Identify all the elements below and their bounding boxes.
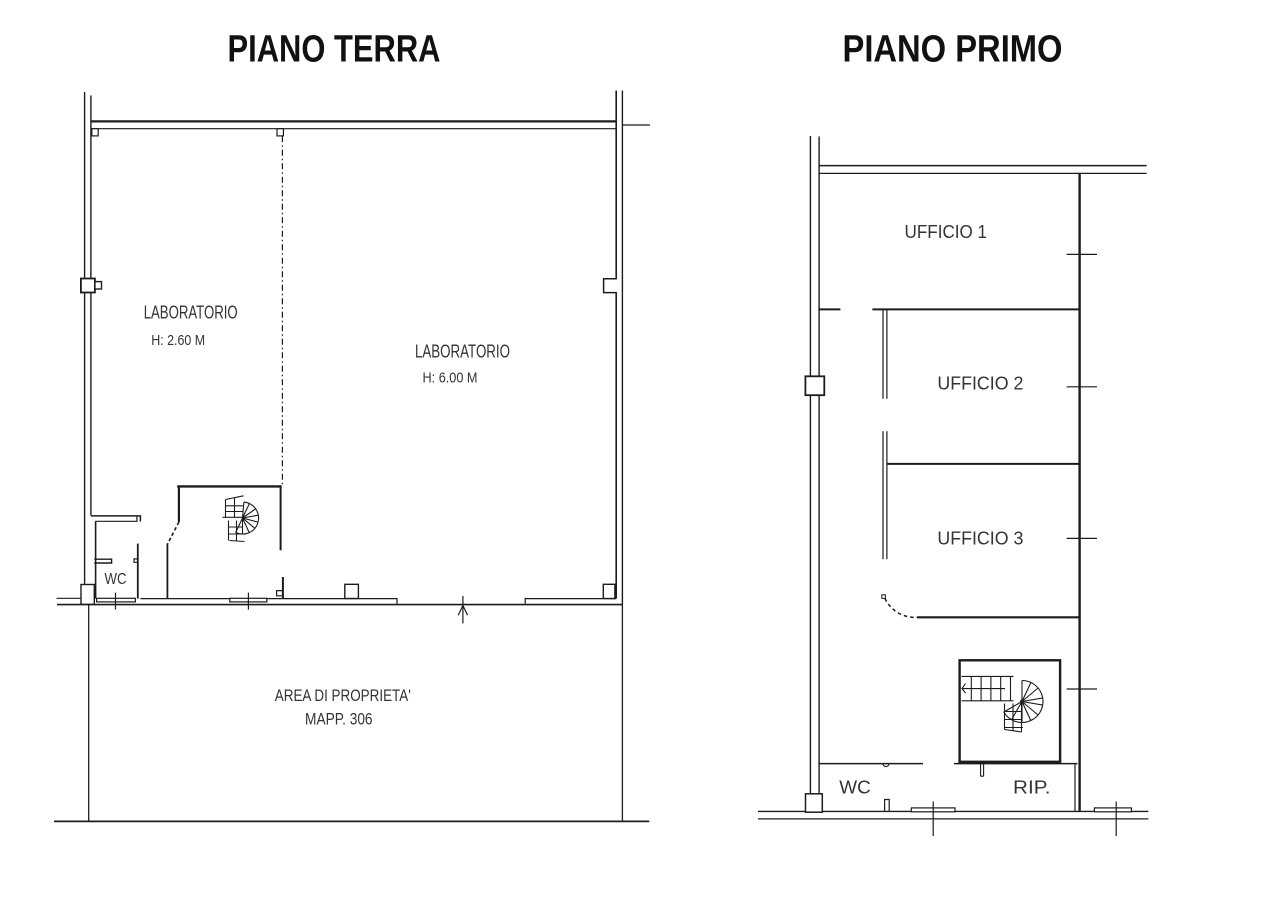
svg-text:AREA DI PROPRIETA': AREA DI PROPRIETA' (275, 686, 411, 705)
svg-text:PIANO PRIMO: PIANO PRIMO (843, 29, 1063, 71)
svg-text:H: 2.60 M: H: 2.60 M (151, 332, 205, 349)
svg-text:WC: WC (105, 571, 127, 588)
svg-text:UFFICIO 2: UFFICIO 2 (937, 374, 1023, 394)
svg-text:PIANO TERRA: PIANO TERRA (228, 29, 441, 71)
svg-text:UFFICIO 3: UFFICIO 3 (937, 529, 1023, 549)
svg-text:LABORATORIO: LABORATORIO (144, 302, 238, 322)
svg-text:RIP.: RIP. (1013, 778, 1051, 798)
svg-text:WC: WC (839, 778, 871, 798)
svg-text:LABORATORIO: LABORATORIO (415, 342, 510, 362)
svg-text:MAPP. 306: MAPP. 306 (305, 709, 373, 728)
svg-text:UFFICIO 1: UFFICIO 1 (905, 222, 988, 242)
svg-text:H: 6.00 M: H: 6.00 M (423, 370, 478, 387)
